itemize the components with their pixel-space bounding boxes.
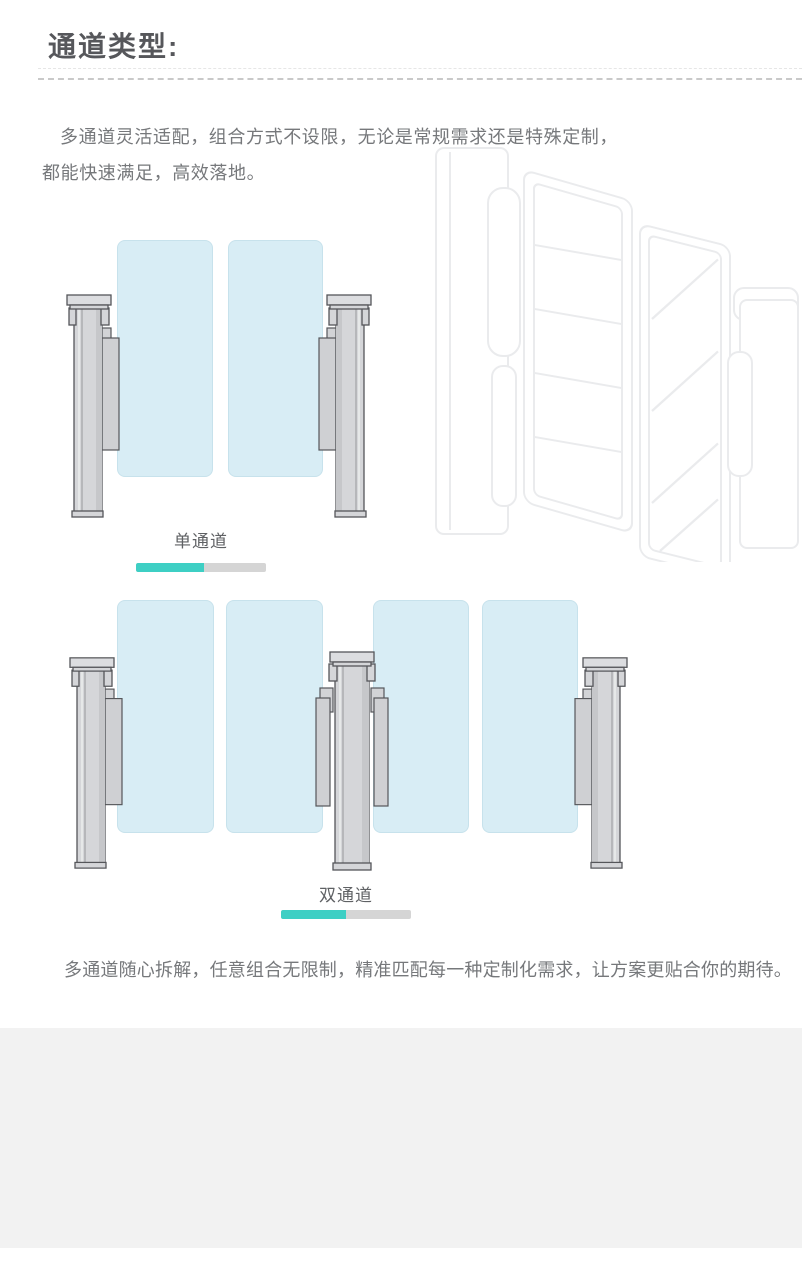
speed-gate-pillar-icon — [314, 292, 372, 519]
glass-wing-panel — [226, 600, 323, 833]
progress-bar-fill — [281, 910, 346, 919]
progress-bar — [281, 910, 411, 919]
figure-label-single-channel: 单通道 — [136, 527, 266, 552]
glass-wing-panel — [117, 240, 213, 477]
progress-bar-fill — [136, 563, 204, 572]
page-title: 通道类型: — [48, 30, 179, 64]
progress-bar — [136, 563, 266, 572]
swing-gate-line-art-icon — [428, 138, 802, 562]
glass-wing-panel — [117, 600, 214, 833]
glass-wing-panel — [228, 240, 323, 477]
figure-label-double-channel: 双通道 — [281, 881, 411, 906]
speed-gate-pillar-icon — [69, 655, 127, 870]
speed-gate-pillar-icon — [570, 655, 628, 870]
speed-gate-pillar-icon — [66, 292, 124, 519]
product-page: 通道类型: 多通道灵活适配，组合方式不设限，无论是常规需求还是特殊定制， 都能快… — [0, 0, 802, 1275]
dashed-divider — [38, 68, 802, 80]
bottom-section-background: 多种搭配任意组合: 多通道灵活适配，组合方式不设限，随心拆解，任意组合无限制，精… — [0, 1028, 802, 1248]
glass-wing-panel — [482, 600, 578, 833]
speed-gate-center-pillar-icon — [314, 650, 390, 872]
closing-paragraph: 多通道随心拆解，任意组合无限制，精准匹配每一种定制化需求，让方案更贴合你的期待。 — [64, 956, 792, 984]
